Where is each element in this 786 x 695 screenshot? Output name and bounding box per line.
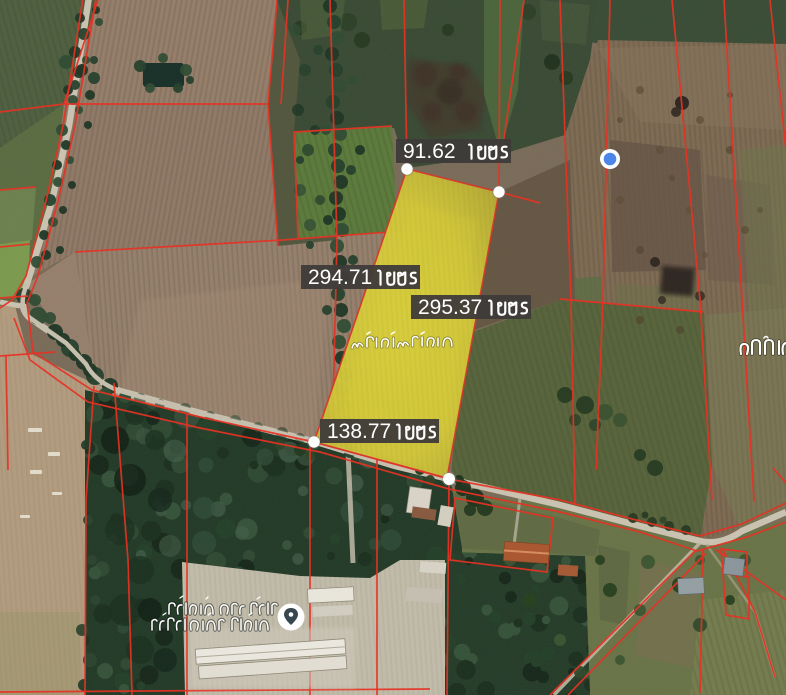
svg-text:138.77: 138.77 (327, 420, 391, 443)
svg-text:91.62: 91.62 (403, 140, 456, 163)
svg-text:294.71: 294.71 (308, 266, 372, 289)
svg-text:295.37: 295.37 (418, 296, 482, 319)
